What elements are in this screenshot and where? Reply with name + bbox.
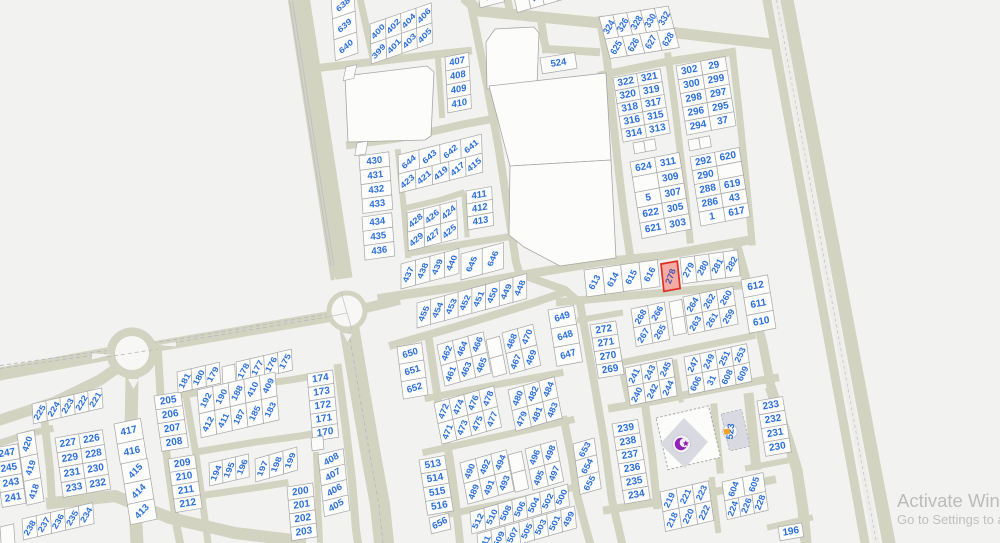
svg-text:435: 435: [370, 230, 387, 243]
svg-text:Go to Settings to activ: Go to Settings to activ: [897, 512, 1000, 527]
svg-text:29: 29: [708, 59, 721, 72]
svg-text:43: 43: [728, 192, 741, 205]
svg-text:431: 431: [367, 169, 384, 182]
svg-text:432: 432: [368, 183, 384, 196]
svg-text:433: 433: [369, 198, 385, 211]
svg-text:37: 37: [716, 114, 729, 127]
svg-text:430: 430: [366, 155, 382, 168]
svg-text:Activate Windows: Activate Windows: [897, 490, 1000, 511]
svg-text:434: 434: [369, 215, 386, 228]
svg-text:436: 436: [371, 244, 387, 257]
